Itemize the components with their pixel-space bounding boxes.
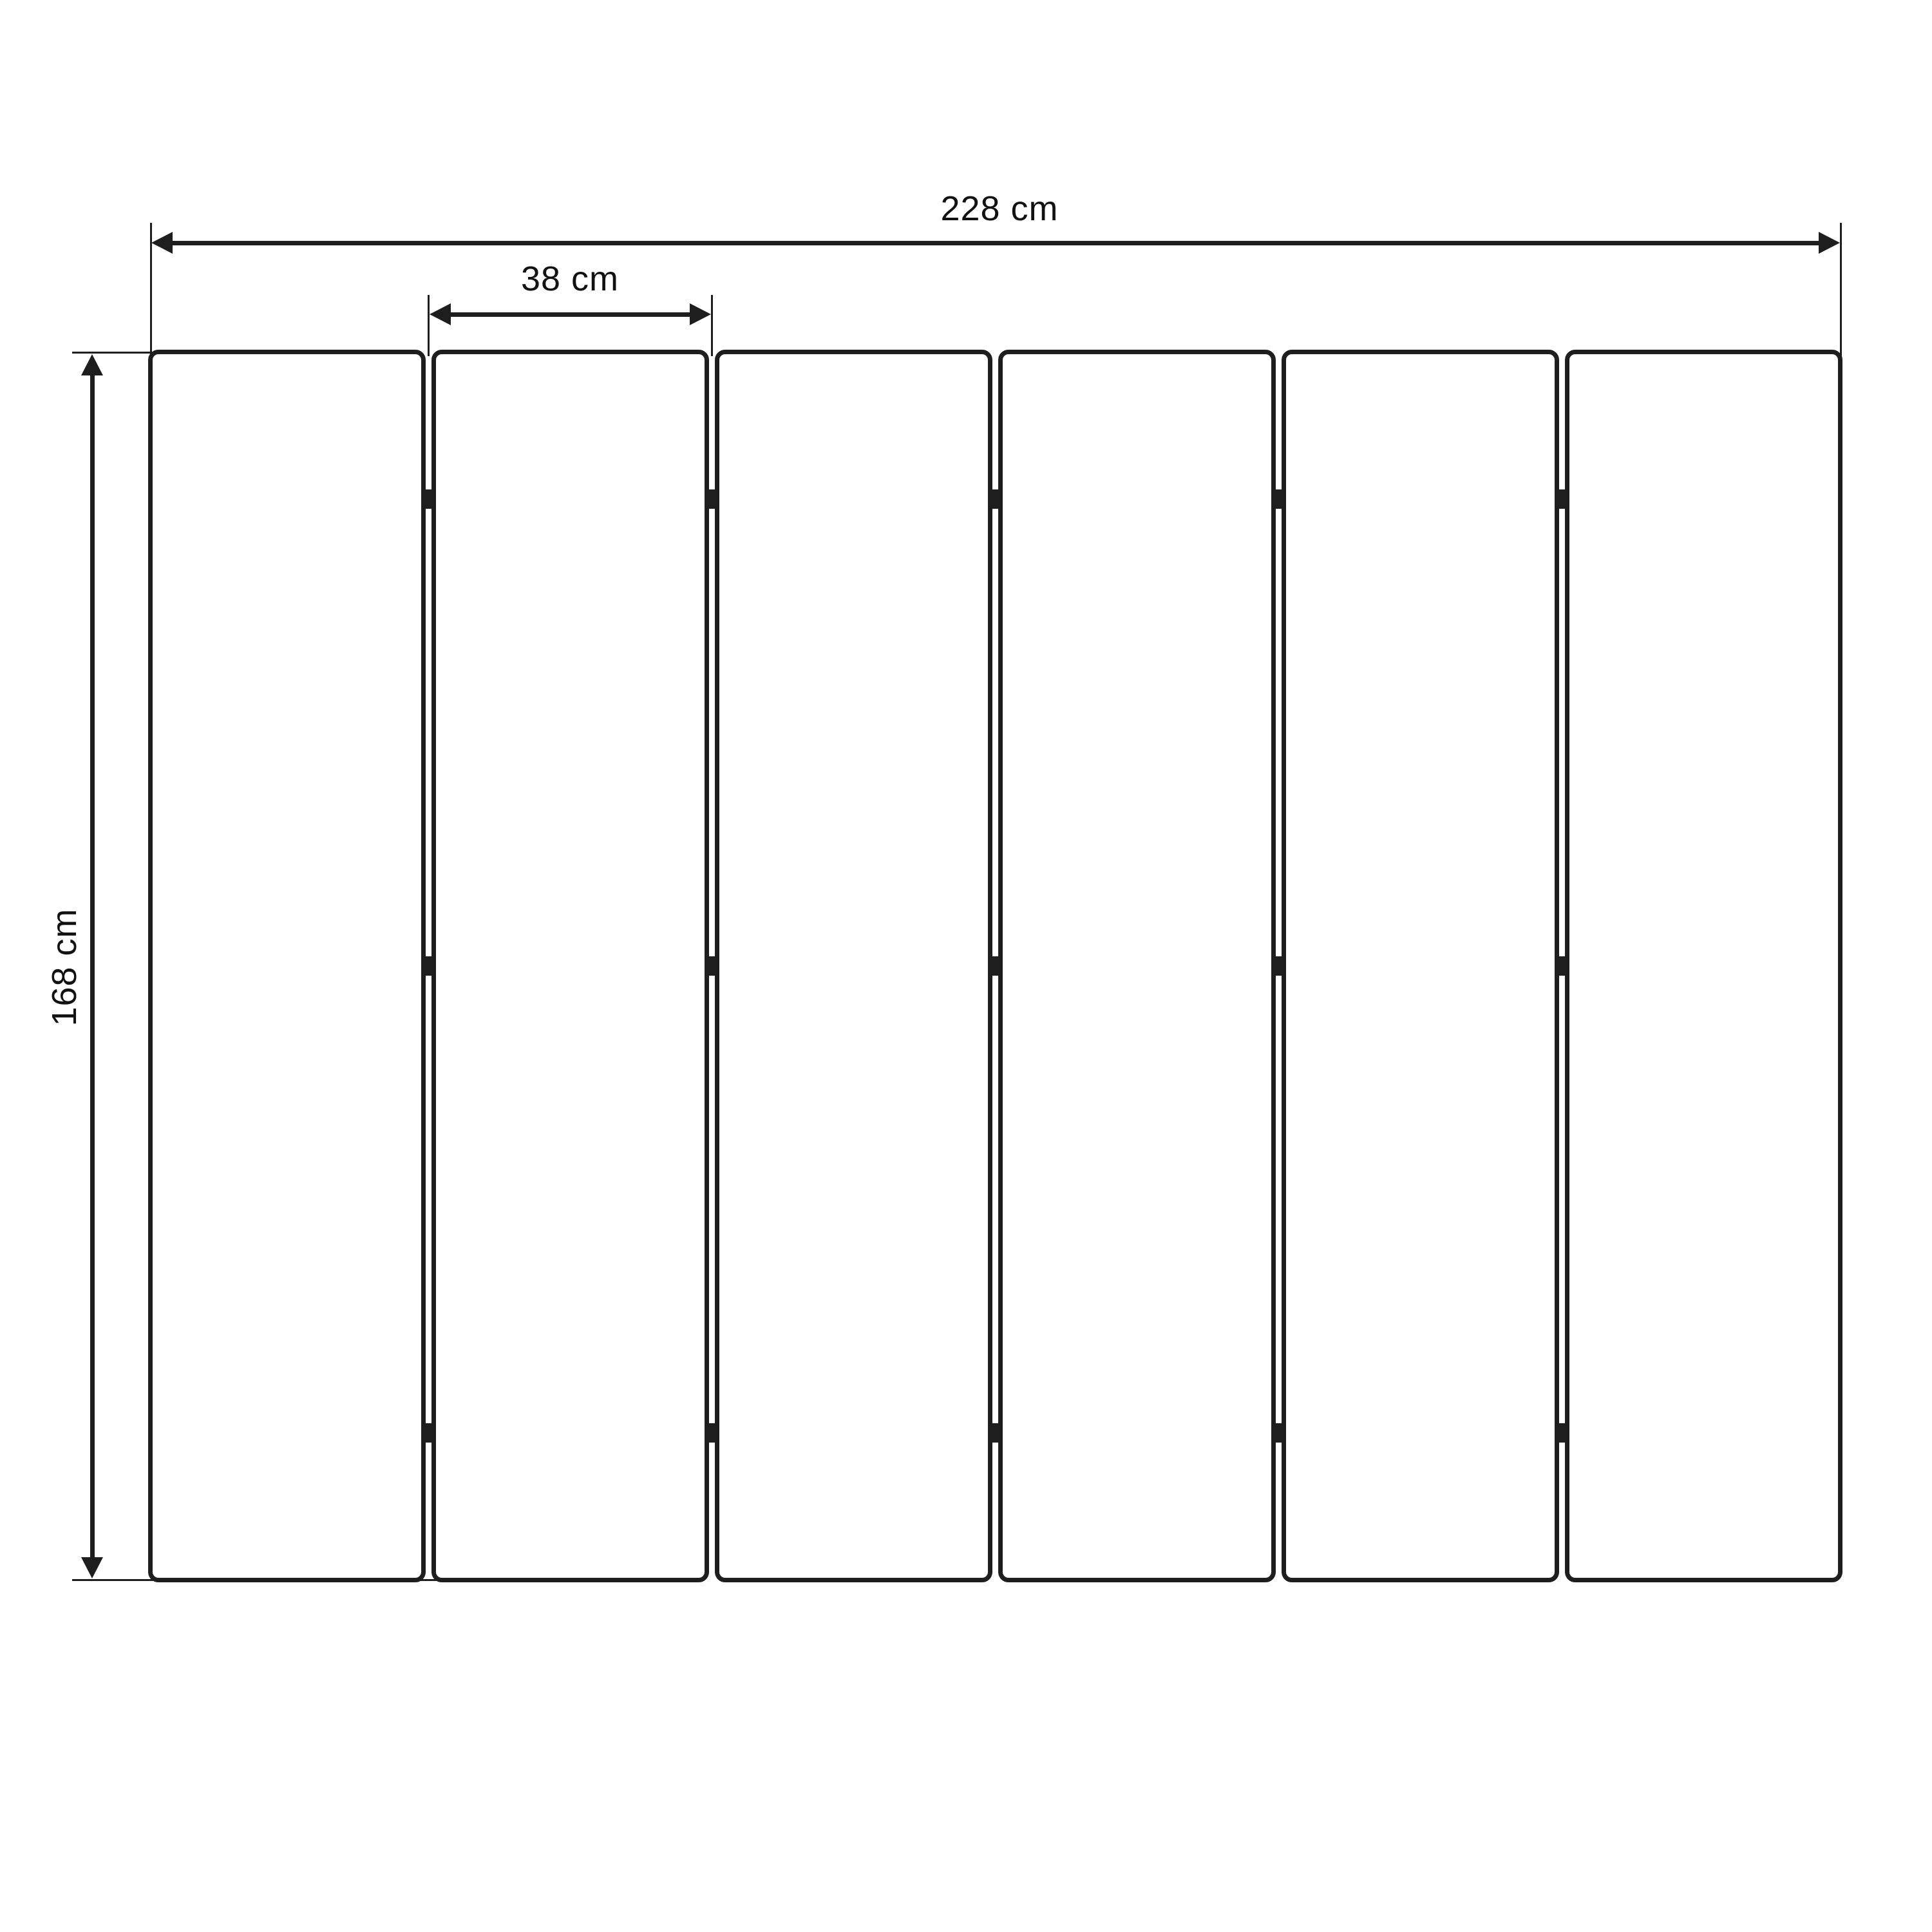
height-extension-line-top [72,352,151,354]
slat-1 [148,350,426,1582]
hinge-mark-gap1-row3 [425,1423,433,1443]
hinge-mark-gap3-row2 [992,956,999,976]
diagram-canvas: 228 cm 38 cm 168 cm [0,0,1932,1932]
hinge-mark-gap2-row3 [708,1423,716,1443]
total-width-label: 228 cm [903,189,1096,228]
slat-6 [1565,350,1842,1582]
hinge-mark-gap4-row1 [1275,489,1283,509]
slat-width-label: 38 cm [473,260,667,298]
hinge-mark-gap2-row1 [708,489,716,509]
height-dimension-line [90,372,95,1561]
slat-5 [1282,350,1559,1582]
slat-2 [431,350,709,1582]
slat-width-arrowhead-right-icon [690,303,711,325]
slat-3 [715,350,992,1582]
hinge-mark-gap5-row3 [1558,1423,1566,1443]
hinge-mark-gap4-row2 [1275,956,1283,976]
slat-width-dimension-line [447,312,694,317]
slat-4 [998,350,1276,1582]
hinge-mark-gap3-row1 [992,489,999,509]
hinge-mark-gap2-row2 [708,956,716,976]
height-arrowhead-bottom-icon [81,1557,103,1578]
hinge-mark-gap1-row2 [425,956,433,976]
hinge-mark-gap3-row3 [992,1423,999,1443]
total-width-dimension-line [169,241,1823,245]
hinge-mark-gap5-row1 [1558,489,1566,509]
hinge-mark-gap4-row3 [1275,1423,1283,1443]
total-width-arrowhead-right-icon [1819,232,1840,254]
height-label: 168 cm [45,871,84,1064]
hinge-mark-gap1-row1 [425,489,433,509]
slat-width-extension-line-right [711,295,713,356]
hinge-mark-gap5-row2 [1558,956,1566,976]
